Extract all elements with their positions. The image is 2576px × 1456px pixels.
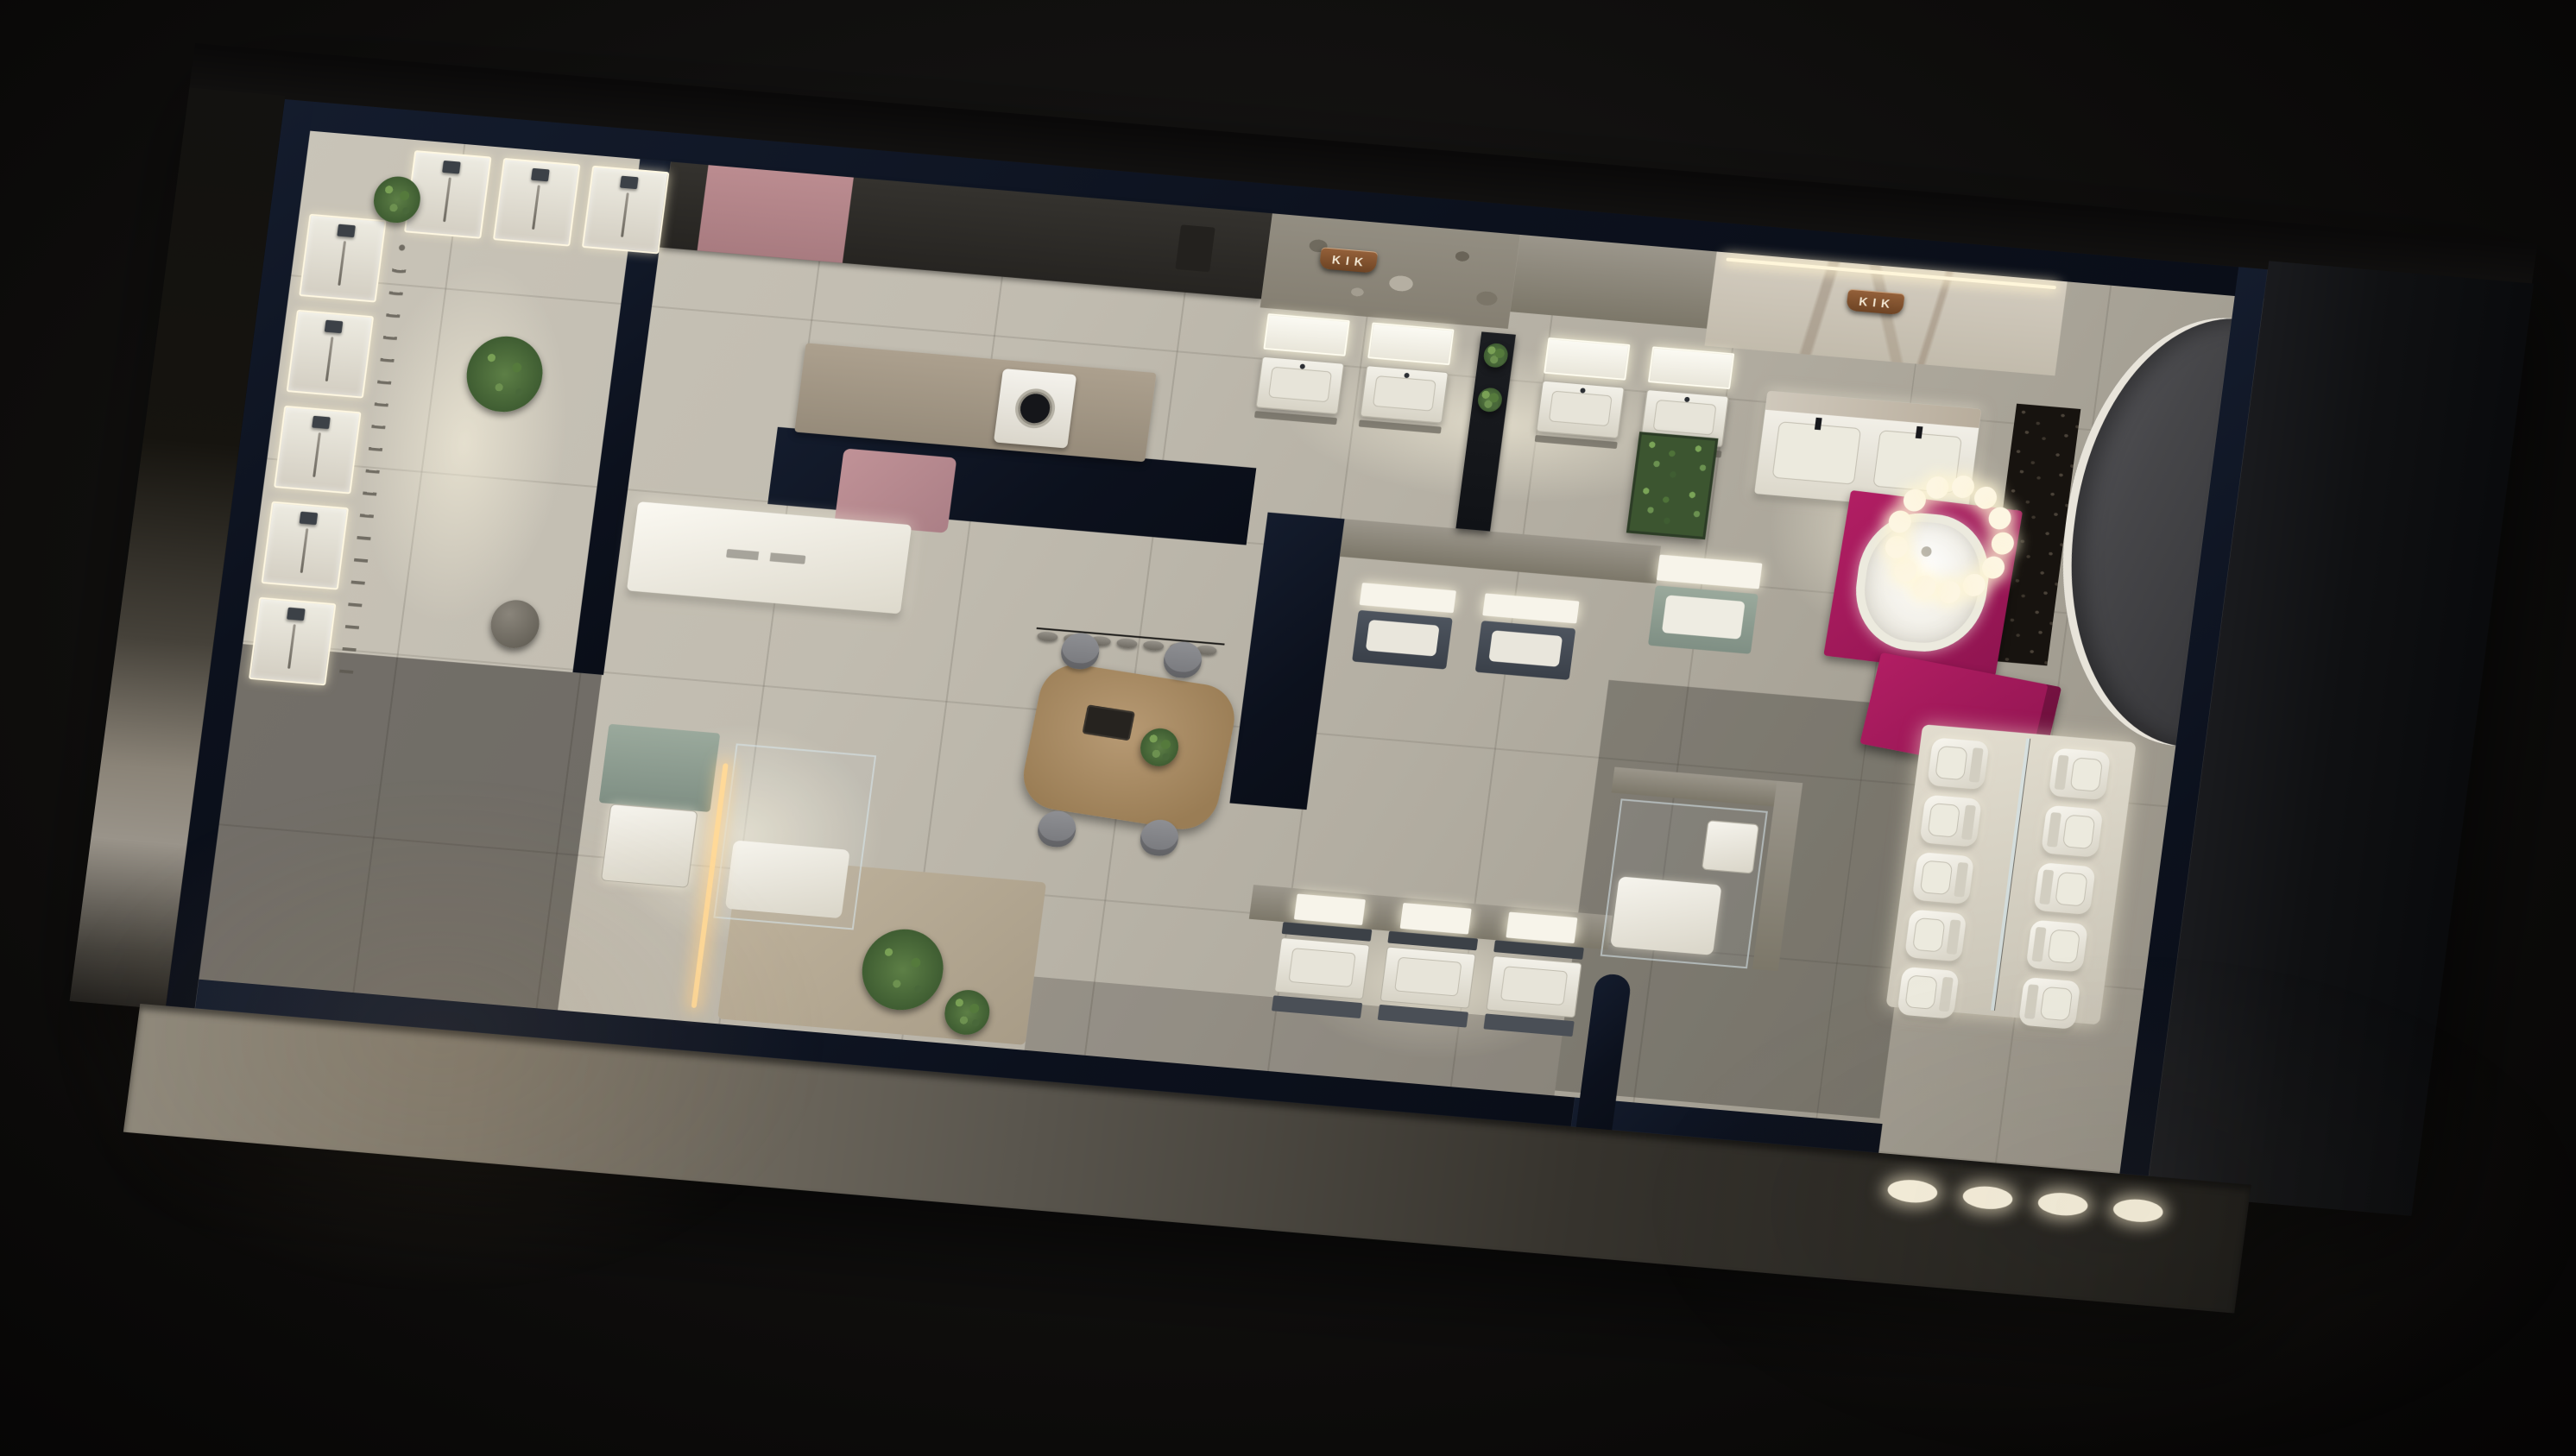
floor-plan: KIK KIK [166,99,2268,1176]
vanity-cabinet [1475,621,1576,680]
serving-tray [1082,704,1135,741]
entry-vanity-basin [601,804,698,888]
basin-bowl [1394,957,1462,997]
shower-tray [1610,876,1721,955]
shower-tray [725,840,850,918]
chandelier-bulb [1990,532,2015,556]
shower-display-panel [261,501,349,590]
toilet [2041,805,2104,858]
toilet [1927,737,1990,790]
toilet [2033,862,2096,915]
charcoal-vanity-row [1351,583,1580,690]
pendant-disc [1037,631,1058,642]
shower-display-panel [299,214,387,303]
wash-basin [1772,421,1862,485]
toilet [1919,795,1982,848]
table-plant [1137,726,1182,769]
toilet [1897,967,1960,1019]
brand-sign-marble-text: KIK [1858,294,1896,311]
wash-basin [1360,365,1449,424]
led-mirror [1263,313,1350,356]
brand-sign-stone-text: KIK [1331,252,1369,268]
shelf-plant [1482,343,1509,369]
floor-shadow-corner [199,644,602,1010]
pink-wall-panel [698,165,854,263]
vanity-display-unit [1483,940,1583,1037]
shower-display-panel [287,310,375,399]
chandelier-bulb [1949,474,1977,501]
pendant-disc [1116,638,1138,649]
shelf-objects [1175,224,1215,272]
wash-basin [1380,947,1476,1009]
wood-table [1017,659,1241,834]
vanity-cabinet [1648,585,1758,654]
vanity-display-unit [1254,313,1350,423]
wash-basin [1486,955,1582,1018]
pendant-disc [1143,640,1165,652]
vanity-display-unit [1272,922,1372,1018]
led-mirror [1367,322,1455,365]
wash-basin [1256,356,1345,415]
toilet [1904,909,1967,961]
chandelier-bulb [1885,534,1910,560]
charcoal-vanity-unit [1351,583,1456,679]
chandelier-bulb [1924,474,1951,501]
entrance-floor-light [1886,1178,1939,1205]
toilet [2018,977,2081,1030]
charcoal-vanity-unit [1474,593,1579,690]
shower-display-panel [249,597,337,686]
entrance-floor-light [2036,1191,2089,1218]
entrance-floor-light [1961,1184,2014,1211]
sage-vanity [1645,555,1763,677]
wash-basin [1274,937,1370,999]
washing-machine [994,369,1076,449]
vanity-display-unit [1535,337,1631,447]
led-mirror [1544,337,1631,381]
vanity-pair-left [1254,313,1454,432]
entrance-floor-light [2112,1197,2164,1224]
toilet [1912,852,1975,904]
entrance-floor-lights [1886,1178,2164,1224]
led-mirror [1648,346,1735,389]
shower-display-panel [274,406,362,495]
bubble-ring-chandelier [1877,470,2022,608]
toilet [2049,747,2112,800]
toilet [2026,919,2089,972]
sage-wall-cabinet [599,724,721,812]
chandelier-bulb [1938,581,1960,604]
vanity-display-unit [1378,931,1478,1028]
wash-basin [1662,595,1746,639]
basin-bowl [1500,966,1568,1005]
chandelier-bulb [1885,507,1915,536]
vanity-display-unit [1359,322,1455,432]
showroom-render: KIK KIK [0,0,2576,1456]
basin-bowl [1288,948,1355,987]
island-label-illegible [726,549,805,564]
plant-feature-wall [1626,432,1718,539]
wash-basin [1702,820,1759,874]
shower-display-panel [582,166,670,255]
shower-display-panel [493,158,581,247]
vanity-cabinet [1352,610,1453,670]
wash-basin [1536,381,1625,439]
shelf-plant [1476,387,1503,413]
